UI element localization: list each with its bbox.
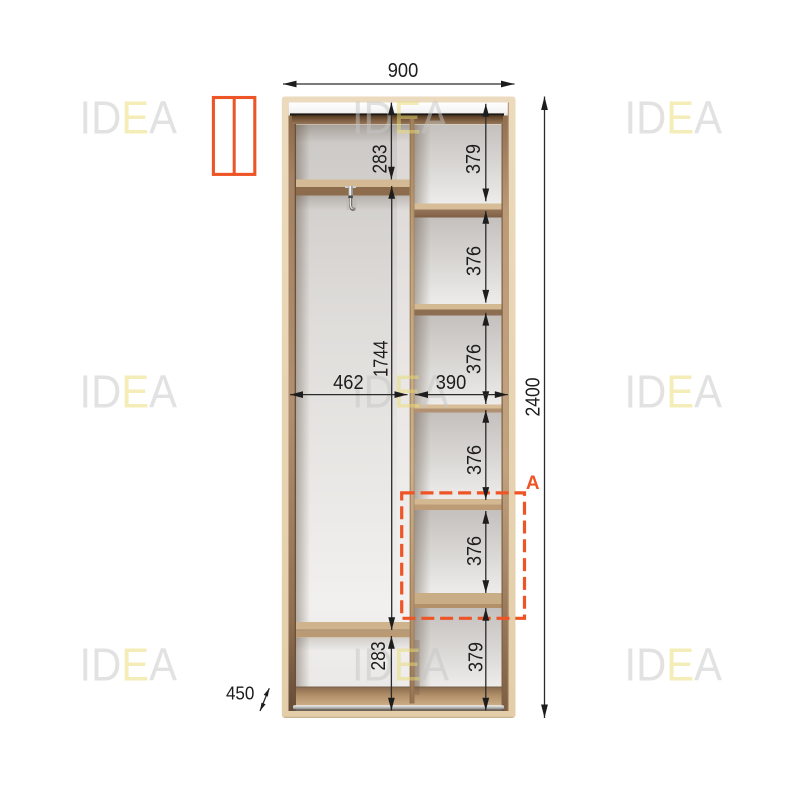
svg-text:376: 376	[463, 445, 486, 475]
svg-text:IDEA: IDEA	[80, 92, 178, 144]
svg-text:IDEA: IDEA	[80, 366, 178, 418]
svg-text:390: 390	[436, 371, 467, 394]
svg-text:900: 900	[388, 59, 419, 82]
svg-text:376: 376	[462, 246, 485, 276]
svg-text:2400: 2400	[522, 378, 545, 417]
svg-text:IDEA: IDEA	[625, 366, 723, 418]
svg-text:379: 379	[462, 144, 485, 174]
svg-text:283: 283	[368, 145, 391, 174]
svg-text:376: 376	[463, 536, 486, 566]
svg-text:462: 462	[333, 371, 364, 394]
svg-text:376: 376	[463, 344, 486, 374]
svg-text:283: 283	[367, 642, 390, 671]
svg-text:IDEA: IDEA	[352, 366, 449, 418]
svg-text:1744: 1744	[369, 340, 392, 377]
svg-text:IDEA: IDEA	[625, 92, 723, 144]
svg-text:450: 450	[226, 684, 255, 704]
svg-text:IDEA: IDEA	[80, 639, 178, 691]
svg-text:379: 379	[464, 642, 487, 672]
svg-text:IDEA: IDEA	[625, 639, 723, 691]
svg-text:IDEA: IDEA	[352, 92, 449, 144]
svg-text:A: A	[526, 473, 540, 494]
